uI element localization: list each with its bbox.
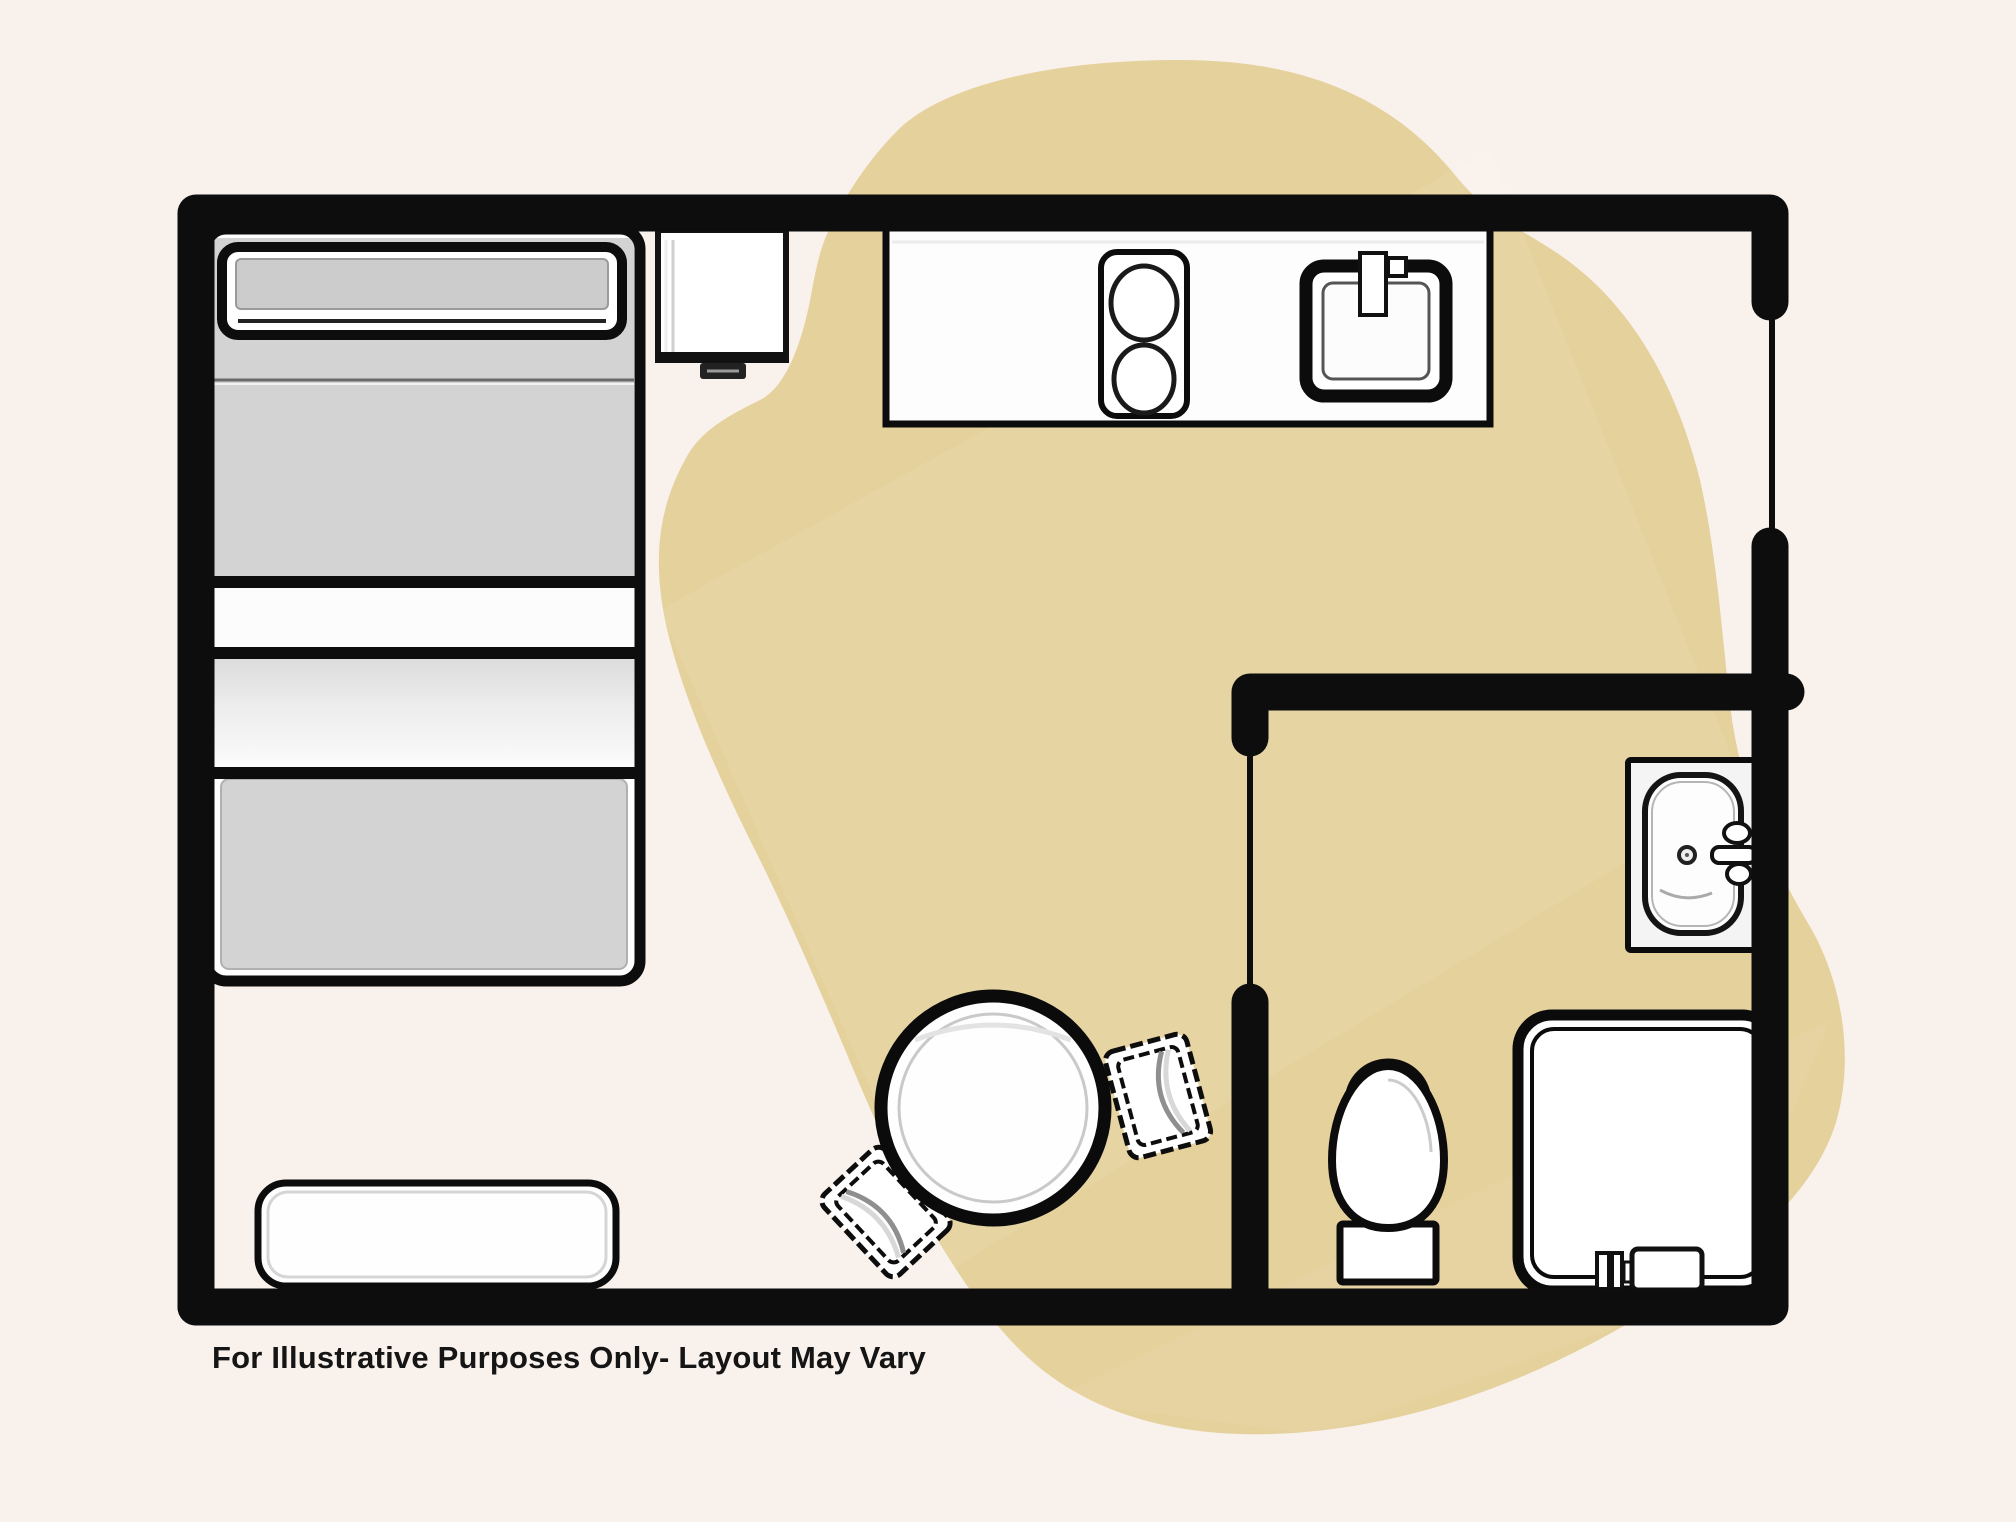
- bed-blanket: [221, 779, 627, 969]
- dining-table: [881, 996, 1105, 1220]
- pillow: [222, 247, 622, 335]
- caption: For Illustrative Purposes Only- Layout M…: [212, 1340, 926, 1376]
- floor-plan-svg: [0, 0, 2016, 1522]
- bench: [258, 1183, 616, 1286]
- bed-sheet-fold: [212, 659, 636, 767]
- shower: [1518, 1015, 1776, 1291]
- kitchen-counter: [886, 222, 1490, 424]
- bed-sheet-band: [212, 588, 636, 647]
- bed: [206, 229, 640, 981]
- stove: [1101, 252, 1187, 416]
- stove-burner: [1111, 266, 1177, 340]
- stove-burner: [1114, 345, 1174, 413]
- toilet: [1332, 1062, 1444, 1282]
- toilet-bowl: [1332, 1066, 1444, 1228]
- bathroom-sink: [1628, 760, 1758, 950]
- kitchen-sink: [1306, 253, 1446, 396]
- shower-fixture: [1597, 1249, 1702, 1290]
- kitchen-faucet: [1360, 253, 1386, 315]
- floor-plan-page: For Illustrative Purposes Only- Layout M…: [0, 0, 2016, 1522]
- toilet-tank: [1340, 1224, 1436, 1282]
- nightstand: [658, 230, 786, 379]
